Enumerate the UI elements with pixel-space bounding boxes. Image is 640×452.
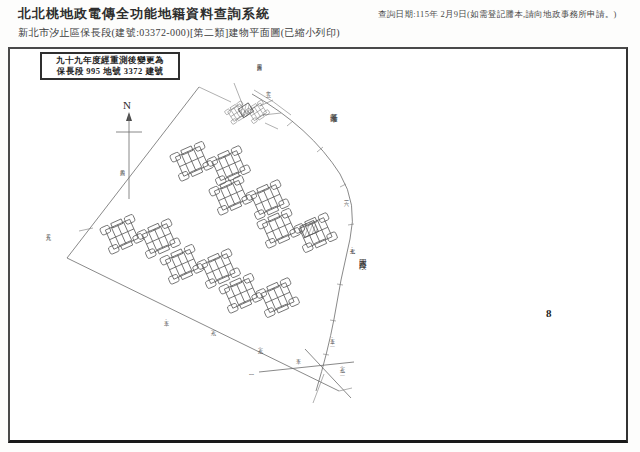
lot-number-label: 二五九 <box>46 234 51 241</box>
lot-number-label: 十五-一 <box>164 317 170 327</box>
building-footprints <box>99 91 338 331</box>
cadastral-map: N <box>10 49 626 440</box>
north-arrow-label: N <box>123 99 131 111</box>
lot-number-label: 一二六 <box>344 199 349 207</box>
building-cluster <box>99 201 181 272</box>
lot-number-label: 一八七-二 <box>340 364 346 377</box>
lot-number-label: 五七七-一 <box>350 245 356 254</box>
subject-building-hatch <box>300 220 319 237</box>
north-arrow: N <box>116 99 142 199</box>
lot-number-label: 十五 <box>296 359 301 365</box>
lot-number-label: 十五-二 <box>330 335 336 348</box>
sheet-number: 8 <box>546 307 552 319</box>
query-date-text: 查詢日期:115年 2月9日(如需登記謄本,請向地政事務所申請。) <box>378 9 617 21</box>
lot-number-label: 一二五-一 <box>266 89 272 98</box>
building-cluster <box>256 195 338 266</box>
parcel-boundary-lines <box>67 83 339 391</box>
document-title: 新北市汐止區保長段(建號:03372-000)[第二類]建物平面圖(已縮小列印) <box>18 26 340 40</box>
screenshot-root: 北北桃地政電傳全功能地籍資料查詢系統 查詢日期:115年 2月9日(如需登記謄本… <box>0 0 640 452</box>
south-boundary-lines <box>259 349 354 403</box>
building-cluster <box>208 162 290 233</box>
lot-number-label: 一一 <box>249 373 254 375</box>
road-name-label: 大同路三段 <box>358 252 367 270</box>
connector-lines <box>260 100 281 129</box>
city-label: 基隆市 <box>329 107 338 123</box>
system-title: 北北桃地政電傳全功能地籍資料查詢系統 <box>18 5 270 23</box>
plan-page-frame: 九十九年度經重測後變更為 保長段 995 地號 3372 建號 <box>8 47 628 443</box>
building-cluster <box>169 128 251 199</box>
lot-number-label: 二四五 <box>120 170 125 176</box>
lot-number-label: 大同路一二五 <box>257 63 262 71</box>
